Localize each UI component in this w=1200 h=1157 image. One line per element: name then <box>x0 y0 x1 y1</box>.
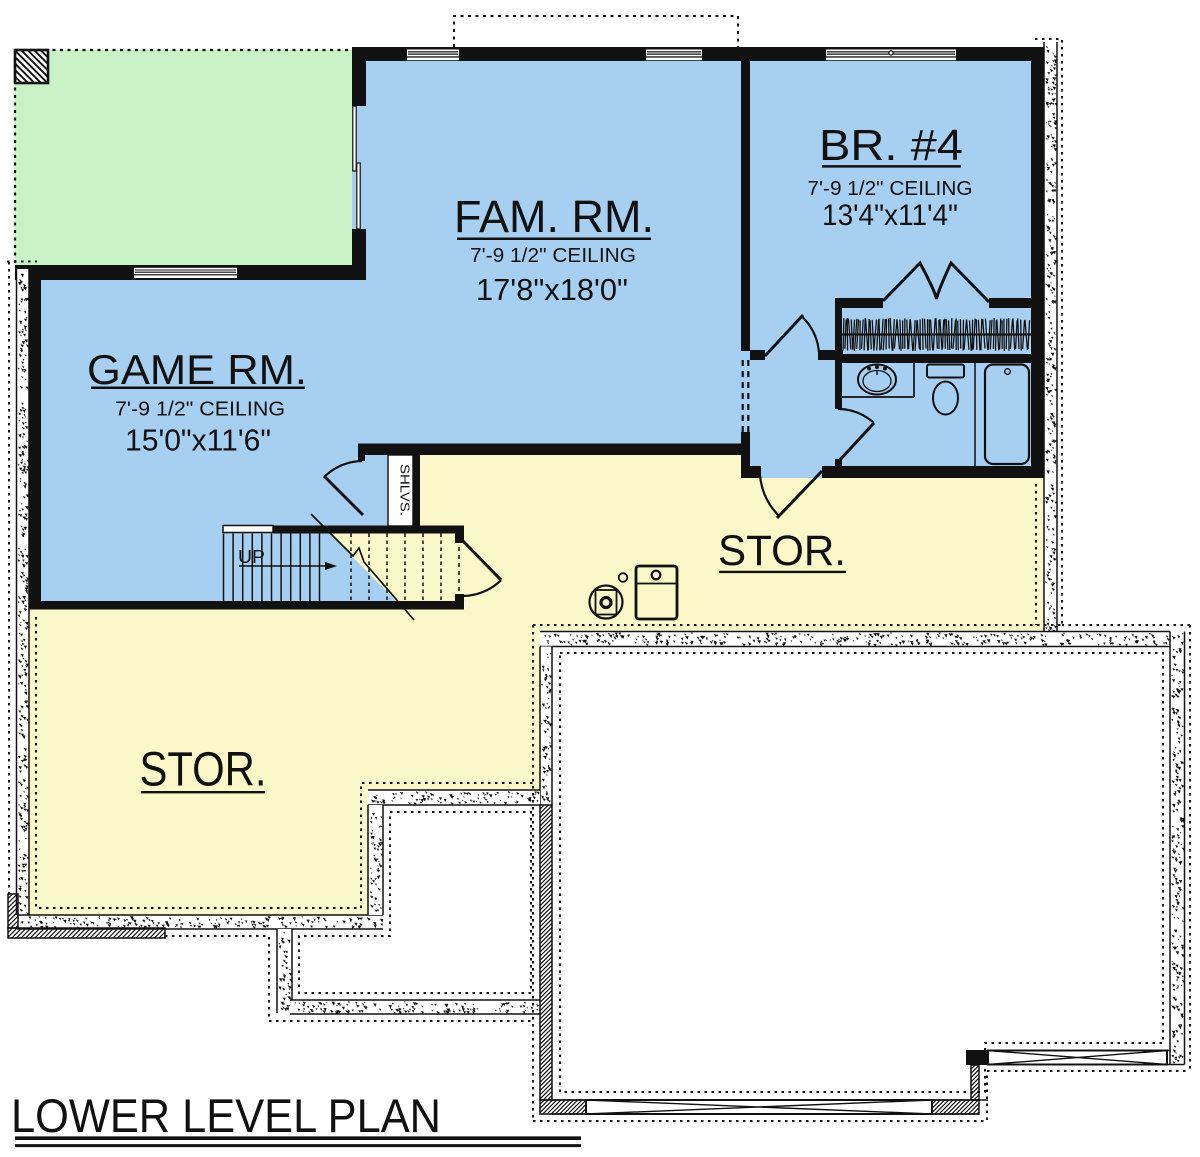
svg-text:7'-9 1/2" CEILING: 7'-9 1/2" CEILING <box>115 399 285 421</box>
svg-text:7'-9 1/2" CEILING: 7'-9 1/2" CEILING <box>470 245 636 267</box>
svg-text:UP: UP <box>238 547 265 567</box>
svg-text:13'4"x11'4": 13'4"x11'4" <box>822 199 958 232</box>
svg-text:15'0"x11'6": 15'0"x11'6" <box>125 424 271 458</box>
svg-text:FAM. RM.: FAM. RM. <box>454 191 654 242</box>
svg-text:SHLVS.: SHLVS. <box>398 464 413 516</box>
svg-text:LOWER LEVEL PLAN: LOWER LEVEL PLAN <box>11 1089 441 1142</box>
svg-text:17'8"x18'0": 17'8"x18'0" <box>476 272 628 307</box>
svg-text:STOR.: STOR. <box>718 527 846 575</box>
svg-text:STOR.: STOR. <box>140 744 267 797</box>
svg-text:BR. #4: BR. #4 <box>819 122 963 170</box>
svg-text:GAME RM.: GAME RM. <box>87 346 307 393</box>
svg-text:7'-9 1/2" CEILING: 7'-9 1/2" CEILING <box>808 178 973 200</box>
